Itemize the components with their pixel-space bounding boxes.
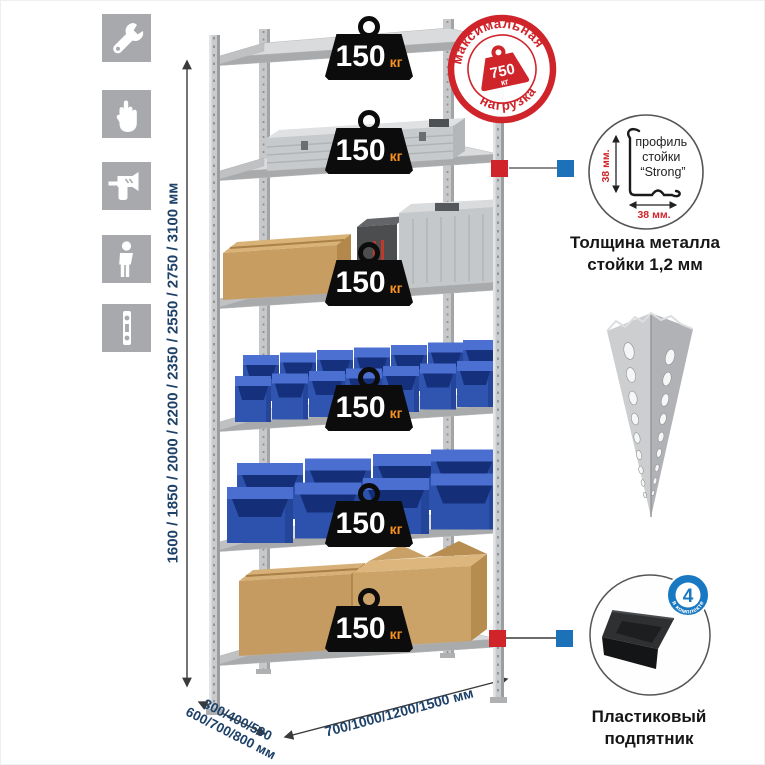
silver-case (399, 199, 503, 289)
profile-caption-line1: Толщина металла (555, 232, 735, 254)
connector-blue-marker-top (557, 160, 574, 177)
quantity-badge: 4 в комплекте (667, 574, 709, 616)
foot-callout: 4 в комплекте (585, 573, 715, 703)
shelf-load-value: 150 (336, 268, 386, 298)
shelf-load-unit: кг (390, 521, 403, 537)
shelf-load-badge-6: 150кг (325, 588, 413, 652)
shelf-load-value: 150 (336, 42, 386, 72)
corner-post-illustration (589, 299, 719, 531)
product-infographic: 150кг 150кг 150кг 150кг 150кг 150кг макс… (0, 0, 765, 765)
profile-label: профиль стойки “Strong” (635, 135, 690, 179)
shelf-load-unit: кг (390, 54, 403, 70)
profile-label-line2: стойки (642, 150, 680, 164)
shelf-load-badge-1: 150кг (325, 16, 413, 80)
shelf-load-value: 150 (336, 614, 386, 644)
height-dimension-label: 1600 / 1850 / 2000 / 2200 / 2350 / 2550 … (165, 183, 182, 564)
connector-red-marker-top (491, 160, 508, 177)
shelf-load-badge-2: 150кг (325, 110, 413, 174)
shelf-load-unit: кг (390, 280, 403, 296)
profile-callout: 38 мм. 38 мм. профиль стойки “Strong” (585, 111, 707, 233)
shelf-load-value: 150 (336, 393, 386, 423)
foot-caption-line2: подпятник (559, 728, 739, 750)
shelf-load-badge-5: 150кг (325, 483, 413, 547)
profile-label-line3: “Strong” (640, 165, 685, 179)
shelf-load-unit: кг (390, 148, 403, 164)
shelf-load-value: 150 (336, 136, 386, 166)
profile-vertical-dim: 38 мм. (600, 149, 612, 182)
connector-blue-marker-bottom (556, 630, 573, 647)
shelf-load-badge-4: 150кг (325, 367, 413, 431)
quantity-badge-value: 4 (683, 586, 694, 607)
profile-label-line1: профиль (635, 135, 687, 149)
profile-caption: Толщина металла стойки 1,2 мм (555, 232, 735, 276)
profile-caption-line2: стойки 1,2 мм (555, 254, 735, 276)
shelf-load-unit: кг (390, 626, 403, 642)
shelf-load-unit: кг (390, 405, 403, 421)
foot-caption: Пластиковый подпятник (559, 706, 739, 750)
profile-horizontal-dim: 38 мм. (637, 209, 670, 221)
connector-red-marker-bottom (489, 630, 506, 647)
foot-caption-line1: Пластиковый (559, 706, 739, 728)
max-load-stamp: максимальная нагрузка 750 кг (437, 4, 567, 134)
shelf-load-value: 150 (336, 509, 386, 539)
shelf-load-badge-3: 150кг (325, 242, 413, 306)
